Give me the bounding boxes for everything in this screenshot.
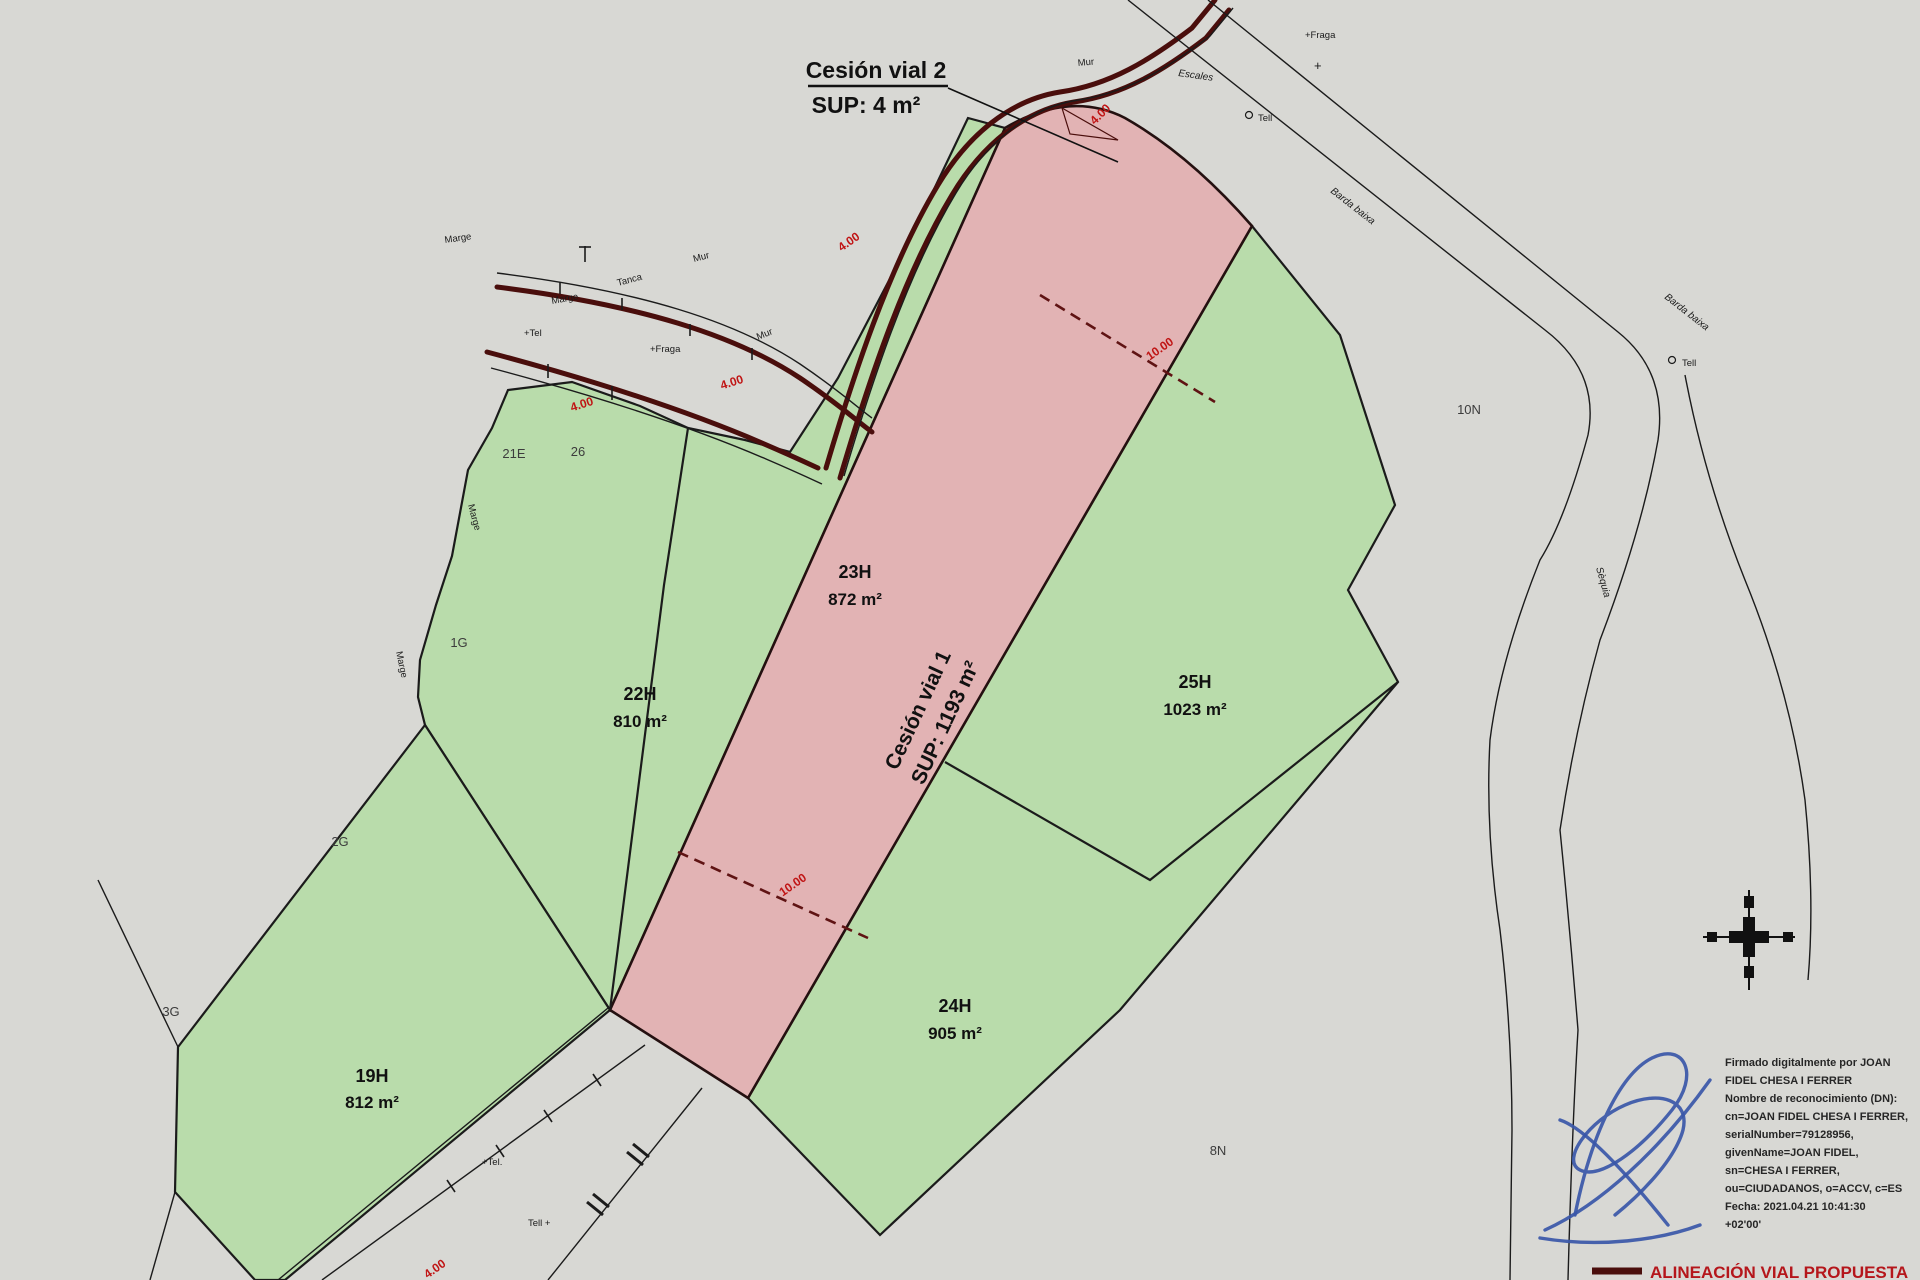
- signature-line: givenName=JOAN FIDEL,: [1725, 1147, 1859, 1159]
- signature-line: serialNumber=79128956,: [1725, 1129, 1854, 1141]
- signature-line: sn=CHESA I FERRER,: [1725, 1165, 1840, 1177]
- parcel-24h-area: 905 m²: [928, 1024, 982, 1043]
- parcel-24h-id: 24H: [938, 996, 971, 1016]
- annotation-tel: +Tel.: [482, 1157, 502, 1168]
- compass-north-mark: [1744, 896, 1754, 908]
- annotation-fraga: +Fraga: [650, 344, 681, 355]
- legend-label: ALINEACIÓN VIAL PROPUESTA: [1650, 1263, 1908, 1280]
- parcel-22h-id: 22H: [623, 684, 656, 704]
- compass-west-mark: [1707, 932, 1717, 942]
- parcel-23h-area: 872 m²: [828, 590, 882, 609]
- signature-line: Nombre de reconocimiento (DN):: [1725, 1093, 1897, 1105]
- neighbor-2g: 2G: [331, 834, 348, 849]
- signature-line: FIDEL CHESA I FERRER: [1725, 1075, 1852, 1087]
- cession-2-sup: SUP: 4 m²: [812, 92, 921, 118]
- neighbor-21e: 21E: [502, 446, 525, 461]
- annotation-tell: Tell: [1258, 113, 1272, 124]
- plus-mark: +: [1314, 58, 1322, 73]
- signature-line: Firmado digitalmente por JOAN: [1725, 1057, 1891, 1069]
- parcel-25h-area: 1023 m²: [1163, 700, 1227, 719]
- annotation-mur: Mur: [1077, 57, 1094, 69]
- neighbor-3g: 3G: [162, 1004, 179, 1019]
- signature-line: cn=JOAN FIDEL CHESA I FERRER,: [1725, 1111, 1908, 1123]
- parcel-23h-id: 23H: [838, 562, 871, 582]
- site-plan-drawing: Cesión vial 2 SUP: 4 m² Cesión vial 1 SU…: [0, 0, 1920, 1280]
- neighbor-10n: 10N: [1457, 402, 1481, 417]
- parcel-19h-area: 812 m²: [345, 1093, 399, 1112]
- neighbor-26: 26: [571, 444, 585, 459]
- annotation-fraga: +Fraga: [1305, 30, 1336, 41]
- compass-south-mark: [1744, 966, 1754, 978]
- annotation-tell: Tell +: [528, 1218, 551, 1229]
- parcel-22h-area: 810 m²: [613, 712, 667, 731]
- neighbor-1g: 1G: [450, 635, 467, 650]
- neighbor-8n: 8N: [1210, 1143, 1227, 1158]
- annotation-tell: Tell: [1682, 358, 1696, 369]
- parcel-25h-id: 25H: [1178, 672, 1211, 692]
- signature-line: ou=CIUDADANOS, o=ACCV, c=ES: [1725, 1183, 1902, 1195]
- parcel-19h-id: 19H: [355, 1066, 388, 1086]
- site-plan-page: Cesión vial 2 SUP: 4 m² Cesión vial 1 SU…: [0, 0, 1920, 1280]
- annotation-tel: +Tel: [524, 328, 542, 339]
- signature-line: Fecha: 2021.04.21 10:41:30: [1725, 1201, 1866, 1213]
- signature-line: +02'00': [1725, 1219, 1762, 1231]
- compass-east-mark: [1783, 932, 1793, 942]
- cession-2-title: Cesión vial 2: [806, 57, 947, 83]
